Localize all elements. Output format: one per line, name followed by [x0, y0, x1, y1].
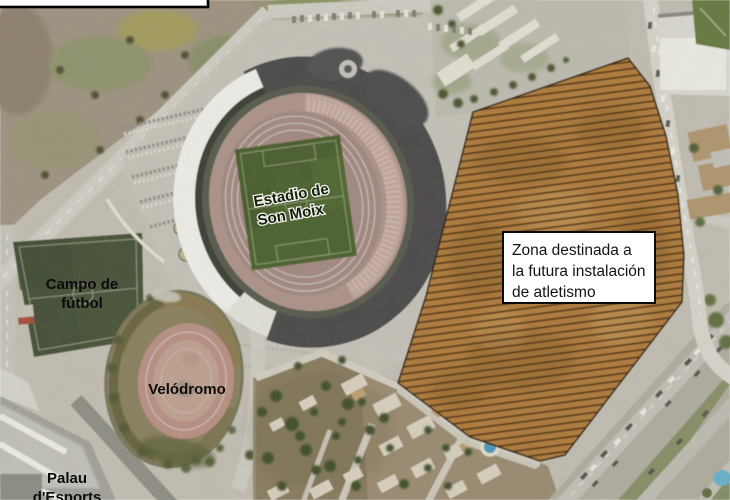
svg-text:de atletismo: de atletismo	[512, 284, 596, 301]
svg-text:Palau: Palau	[47, 470, 87, 487]
svg-text:Campo de: Campo de	[46, 276, 119, 293]
svg-text:d'Esports: d'Esports	[33, 489, 102, 500]
svg-text:Velódromo: Velódromo	[148, 381, 226, 398]
svg-text:Zona destinada a: Zona destinada a	[512, 242, 632, 259]
svg-text:la futura instalación: la futura instalación	[512, 263, 646, 280]
svg-text:fútbol: fútbol	[61, 295, 103, 312]
